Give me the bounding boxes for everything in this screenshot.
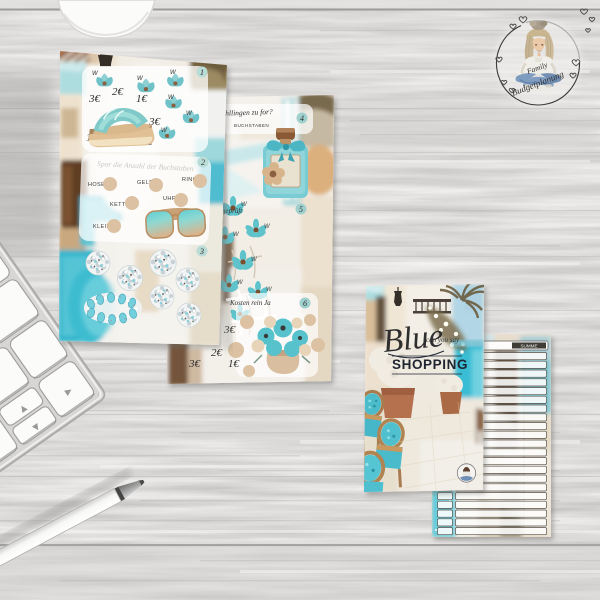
svg-text:1: 1 <box>200 68 204 77</box>
svg-text:Kosten rein Ja: Kosten rein Ja <box>229 299 271 307</box>
svg-text:2€: 2€ <box>112 86 124 98</box>
svg-text:3: 3 <box>199 247 204 256</box>
svg-text:can you say: can you say <box>426 336 460 344</box>
svg-text:3€: 3€ <box>88 93 101 105</box>
svg-text:2€: 2€ <box>211 347 223 359</box>
svg-text:SHOPPING: SHOPPING <box>392 357 468 372</box>
svg-text:1€: 1€ <box>136 93 148 105</box>
svg-text:4: 4 <box>300 114 304 123</box>
svg-text:6: 6 <box>303 299 307 308</box>
svg-text:1€: 1€ <box>228 358 240 370</box>
svg-text:SUMME: SUMME <box>520 344 537 349</box>
svg-text:HOSE: HOSE <box>88 182 105 188</box>
svg-text:5: 5 <box>299 205 303 214</box>
svg-text:BUCHSTABEN: BUCHSTABEN <box>234 123 269 128</box>
svg-text:2: 2 <box>201 158 205 167</box>
svg-text:3€: 3€ <box>188 358 201 370</box>
